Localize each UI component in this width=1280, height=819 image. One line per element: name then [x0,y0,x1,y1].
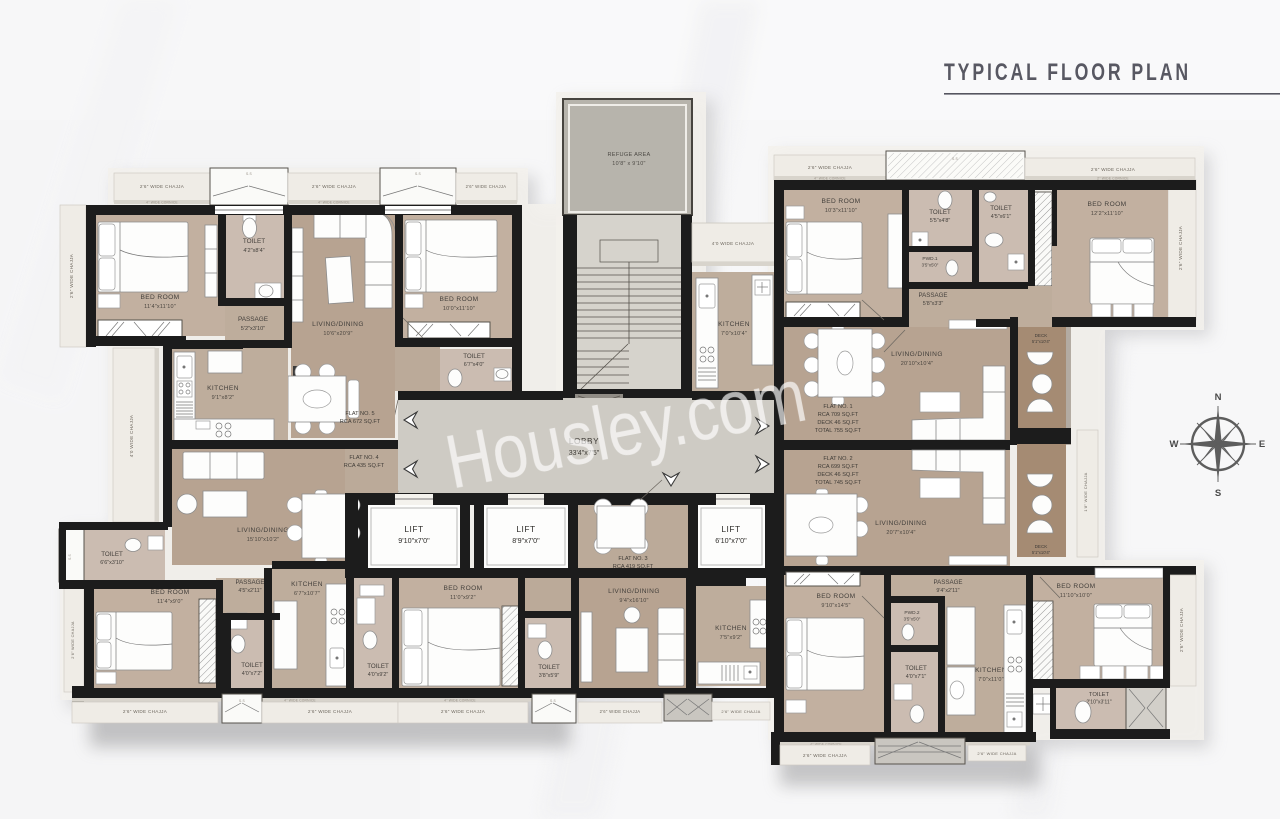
svg-text:FLAT NO. 3: FLAT NO. 3 [618,556,647,562]
svg-text:TOILET: TOILET [463,353,485,360]
svg-text:5'2"x3'10": 5'2"x3'10" [241,326,265,332]
svg-text:4" WIDE CORNICE: 4" WIDE CORNICE [814,177,846,181]
svg-text:2'6" WIDE CHAJJA: 2'6" WIDE CHAJJA [441,709,486,714]
svg-text:4'5"x6'1": 4'5"x6'1" [991,214,1012,220]
svg-text:2'10"x3'11": 2'10"x3'11" [1086,700,1111,706]
svg-text:PWD.2: PWD.2 [904,610,920,616]
svg-text:5'8"x3'3": 5'8"x3'3" [923,301,944,307]
svg-text:4'0"x9'2": 4'0"x9'2" [368,672,389,678]
svg-text:KITCHEN: KITCHEN [715,625,747,632]
svg-text:5'5"x4'8": 5'5"x4'8" [930,218,951,224]
svg-text:2" WIDE CORNICE: 2" WIDE CORNICE [1097,177,1129,181]
svg-text:9'10"x7'0": 9'10"x7'0" [398,536,430,545]
svg-text:DECK: DECK [1035,544,1049,549]
svg-text:PWD.1: PWD.1 [922,256,938,262]
svg-text:4'0"x7'2": 4'0"x7'2" [242,671,263,677]
svg-text:PASSAGE: PASSAGE [238,316,268,323]
svg-text:2'6" WIDE CHAJJA: 2'6" WIDE CHAJJA [600,709,641,714]
svg-text:11'10"x10'0": 11'10"x10'0" [1060,593,1092,599]
svg-text:6'10"x7'0": 6'10"x7'0" [715,536,747,545]
svg-text:RCA 435 SQ.FT: RCA 435 SQ.FT [344,463,385,469]
svg-text:TOILET: TOILET [243,238,265,245]
svg-text:LIVING/DINING: LIVING/DINING [312,321,364,328]
svg-text:PASSAGE: PASSAGE [933,579,962,586]
svg-text:10'6"x20'9": 10'6"x20'9" [323,331,352,337]
svg-text:7'0"x10'4": 7'0"x10'4" [721,331,747,337]
svg-text:3'8"x5'9": 3'8"x5'9" [539,673,560,679]
svg-text:10'0"x11'10": 10'0"x11'10" [443,306,475,312]
svg-text:FLAT NO. 1: FLAT NO. 1 [823,404,852,410]
svg-text:BED ROOM: BED ROOM [140,294,179,301]
svg-text:BED ROOM: BED ROOM [1087,201,1126,208]
svg-text:TOILET: TOILET [1089,692,1110,698]
svg-text:11'4"x11'10": 11'4"x11'10" [144,304,176,310]
svg-text:RCA 672 SQ.FT: RCA 672 SQ.FT [340,419,381,425]
svg-text:LIVING/DINING: LIVING/DINING [875,520,927,527]
svg-text:TOILET: TOILET [367,663,389,670]
svg-text:2'6" WIDE CHAJJA: 2'6" WIDE CHAJJA [1091,167,1136,172]
svg-text:5'1"x10'4": 5'1"x10'4" [1032,339,1051,344]
svg-text:S.S: S.S [239,699,246,703]
svg-text:LIFT: LIFT [516,524,535,534]
svg-text:KITCHEN: KITCHEN [291,581,323,588]
svg-text:4'0 WIDE CHAJJA: 4'0 WIDE CHAJJA [129,414,134,457]
svg-text:3'5"x5'0": 3'5"x5'0" [904,617,921,622]
svg-text:1'8" WIDE CHAJJA: 1'8" WIDE CHAJJA [1083,472,1088,511]
svg-text:4'0 WIDE CHAJJA: 4'0 WIDE CHAJJA [712,241,755,246]
svg-text:TOILET: TOILET [990,205,1012,212]
svg-text:BED ROOM: BED ROOM [1056,583,1095,590]
svg-text:2'6" WIDE CHAJJA: 2'6" WIDE CHAJJA [123,709,168,714]
svg-text:9'4"x16'10": 9'4"x16'10" [619,598,648,604]
svg-text:TYPICAL FLOOR PLAN: TYPICAL FLOOR PLAN [944,59,1191,86]
svg-text:BED ROOM: BED ROOM [816,593,855,600]
svg-text:TOTAL 745 SQ.FT: TOTAL 745 SQ.FT [815,480,862,486]
svg-text:4'0"x7'1": 4'0"x7'1" [906,674,927,680]
svg-text:DECK: DECK [1035,333,1049,338]
svg-text:7'5"x9'2": 7'5"x9'2" [720,635,743,641]
svg-text:N: N [1215,392,1222,403]
svg-text:TOTAL 755 SQ.FT: TOTAL 755 SQ.FT [815,428,862,434]
svg-text:S.S: S.S [550,699,557,703]
svg-text:2'6" WIDE CHAJJA: 2'6" WIDE CHAJJA [721,709,760,714]
svg-text:TOILET: TOILET [905,665,927,672]
svg-text:LIFT: LIFT [404,524,423,534]
svg-text:2'6" WIDE CHAJJA: 2'6" WIDE CHAJJA [71,621,75,659]
svg-text:S.S: S.S [246,172,253,176]
svg-text:2'6" WIDE CHAJJA: 2'6" WIDE CHAJJA [140,184,185,189]
svg-text:KITCHEN: KITCHEN [207,385,239,392]
svg-text:FLAT NO. 5: FLAT NO. 5 [345,411,374,417]
svg-text:BED ROOM: BED ROOM [821,198,860,205]
svg-text:DECK 46 SQ.FT: DECK 46 SQ.FT [817,420,859,426]
svg-text:10'3"x11'10": 10'3"x11'10" [825,208,857,214]
svg-text:9'1"x8'2": 9'1"x8'2" [212,395,235,401]
svg-text:KITCHEN: KITCHEN [975,667,1007,674]
svg-text:TOILET: TOILET [101,551,123,558]
svg-text:FLAT NO. 2: FLAT NO. 2 [823,456,852,462]
svg-text:2'6" WIDE CHAJJA: 2'6" WIDE CHAJJA [1179,607,1184,652]
svg-text:TOILET: TOILET [241,662,263,669]
svg-text:4'2"x8'4": 4'2"x8'4" [243,248,264,254]
svg-text:9'10"x14'5": 9'10"x14'5" [821,603,850,609]
svg-text:TOILET: TOILET [929,209,951,216]
svg-text:20'7"x10'4": 20'7"x10'4" [886,530,915,536]
svg-text:3'5"x5'0": 3'5"x5'0" [922,263,939,268]
svg-text:10'8" x 9'10": 10'8" x 9'10" [612,161,645,167]
svg-text:LIVING/DINING: LIVING/DINING [237,527,289,534]
svg-text:20'10"x10'4": 20'10"x10'4" [901,361,934,367]
svg-text:2'6" WIDE CHAJJA: 2'6" WIDE CHAJJA [69,253,74,298]
svg-text:4" WIDE CORNICE: 4" WIDE CORNICE [146,200,178,204]
svg-text:6'7"x10'7": 6'7"x10'7" [294,591,320,597]
svg-text:LIVING/DINING: LIVING/DINING [608,588,660,595]
svg-text:7'0"x11'0": 7'0"x11'0" [978,677,1004,683]
svg-text:LIVING/DINING: LIVING/DINING [891,351,943,358]
svg-text:LIFT: LIFT [721,524,740,534]
svg-text:2'6" WIDE CHAJJA: 2'6" WIDE CHAJJA [308,709,353,714]
svg-text:S.S: S.S [952,157,959,161]
svg-text:TOILET: TOILET [538,664,560,671]
svg-text:PASSAGE: PASSAGE [918,292,947,299]
svg-text:12'2"x11'10": 12'2"x11'10" [1091,211,1123,217]
svg-text:RCA 709 SQ.FT: RCA 709 SQ.FT [818,412,859,418]
svg-text:RCA 699 SQ.FT: RCA 699 SQ.FT [818,464,859,470]
svg-text:11'4"x9'0": 11'4"x9'0" [157,599,183,605]
svg-text:BED ROOM: BED ROOM [439,296,478,303]
svg-text:2'6" WIDE CHAJJA: 2'6" WIDE CHAJJA [312,184,357,189]
svg-text:BED ROOM: BED ROOM [443,585,482,592]
svg-text:BED ROOM: BED ROOM [150,589,189,596]
svg-text:2'6" WIDE CHAJJA: 2'6" WIDE CHAJJA [977,751,1016,756]
svg-text:8'9"x7'0": 8'9"x7'0" [512,536,540,545]
svg-text:S.S: S.S [68,553,72,560]
svg-text:S: S [1215,488,1221,499]
svg-text:REFUGE AREA: REFUGE AREA [607,152,650,158]
svg-text:W: W [1170,439,1179,450]
svg-text:FLAT NO. 4: FLAT NO. 4 [349,455,378,461]
svg-text:E: E [1259,439,1265,450]
svg-text:11'0"x9'2": 11'0"x9'2" [450,595,476,601]
svg-text:S.S: S.S [415,172,422,176]
svg-text:4" WIDE CORNICE: 4" WIDE CORNICE [318,200,350,204]
svg-text:PASSAGE: PASSAGE [235,579,264,586]
svg-text:4'5"x2'11": 4'5"x2'11" [238,588,261,594]
svg-text:DECK 46 SQ.FT: DECK 46 SQ.FT [817,472,859,478]
svg-text:6'7"x4'0": 6'7"x4'0" [464,362,485,368]
svg-text:2'6" WIDE CHAJJA: 2'6" WIDE CHAJJA [1178,225,1183,270]
svg-text:2'6" WIDE CHAJJA: 2'6" WIDE CHAJJA [803,753,848,758]
svg-text:6'6"x3'10": 6'6"x3'10" [100,560,124,566]
svg-text:KITCHEN: KITCHEN [718,321,750,328]
svg-text:2'6" WIDE CHAJJA: 2'6" WIDE CHAJJA [466,184,507,189]
svg-text:5'1"x10'4": 5'1"x10'4" [1032,550,1051,555]
svg-text:15'10"x10'2": 15'10"x10'2" [247,537,280,543]
svg-text:9'4"x2'11": 9'4"x2'11" [936,588,959,594]
svg-text:2'6" WIDE CHAJJA: 2'6" WIDE CHAJJA [808,165,853,170]
